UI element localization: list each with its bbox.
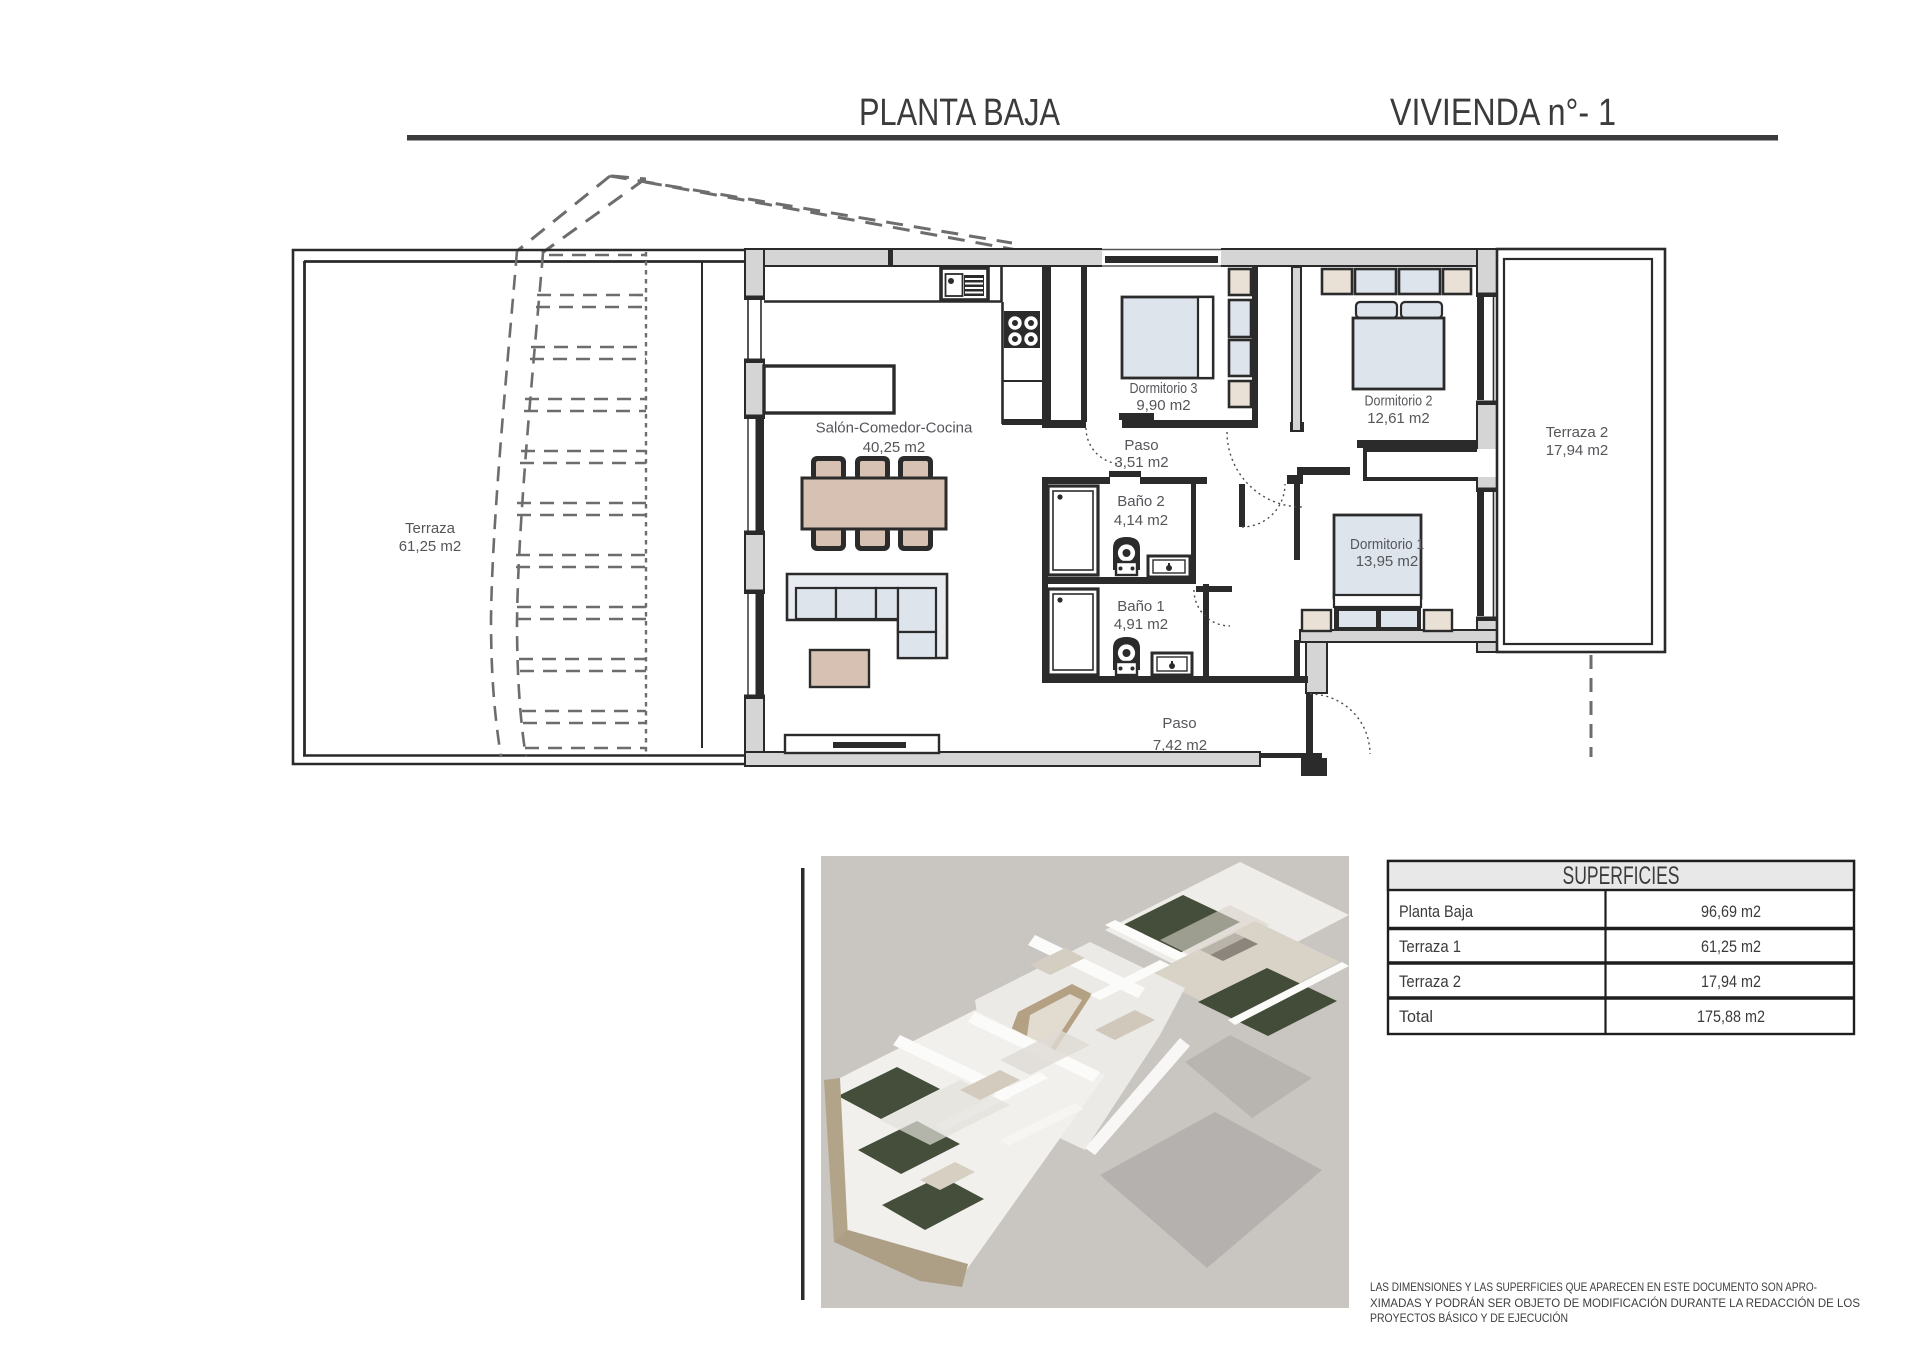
svg-text:4,91 m2: 4,91 m2 <box>1114 616 1168 633</box>
svg-text:96,69 m2: 96,69 m2 <box>1701 903 1761 921</box>
svg-text:175,88 m2: 175,88 m2 <box>1697 1008 1765 1026</box>
svg-text:Salón-Comedor-Cocina: Salón-Comedor-Cocina <box>816 420 973 437</box>
svg-text:61,25 m2: 61,25 m2 <box>1701 938 1761 956</box>
svg-text:Terraza 1: Terraza 1 <box>1399 938 1461 956</box>
svg-text:Terraza 2: Terraza 2 <box>1546 424 1609 441</box>
svg-text:Dormitorio 2: Dormitorio 2 <box>1365 393 1433 410</box>
svg-text:Total: Total <box>1399 1008 1433 1026</box>
svg-text:Planta Baja: Planta Baja <box>1399 903 1474 921</box>
svg-text:Baño 2: Baño 2 <box>1117 493 1165 510</box>
svg-text:9,90 m2: 9,90 m2 <box>1136 397 1190 414</box>
svg-text:61,25 m2: 61,25 m2 <box>399 538 462 555</box>
svg-text:Terraza 2: Terraza 2 <box>1399 973 1461 991</box>
svg-text:Dormitorio 1: Dormitorio 1 <box>1350 536 1424 553</box>
svg-text:17,94 m2: 17,94 m2 <box>1701 973 1761 991</box>
svg-text:3,51 m2: 3,51 m2 <box>1114 454 1168 471</box>
svg-text:Terraza: Terraza <box>405 520 456 537</box>
svg-text:PROYECTOS BÁSICO Y DE EJECUCIÓ: PROYECTOS BÁSICO Y DE EJECUCIÓN <box>1370 1310 1568 1325</box>
svg-text:PLANTA BAJA: PLANTA BAJA <box>859 92 1061 134</box>
svg-text:12,61 m2: 12,61 m2 <box>1367 410 1430 427</box>
svg-text:17,94 m2: 17,94 m2 <box>1546 442 1609 459</box>
svg-text:SUPERFICIES: SUPERFICIES <box>1563 862 1680 890</box>
svg-text:VIVIENDA n°- 1: VIVIENDA n°- 1 <box>1390 92 1616 134</box>
svg-text:40,25 m2: 40,25 m2 <box>863 439 926 456</box>
svg-text:Paso: Paso <box>1124 437 1158 454</box>
svg-text:Paso: Paso <box>1162 715 1196 732</box>
svg-text:7,42 m2: 7,42 m2 <box>1153 737 1207 754</box>
svg-text:13,95 m2: 13,95 m2 <box>1356 553 1419 570</box>
svg-text:Dormitorio 3: Dormitorio 3 <box>1130 380 1198 397</box>
svg-text:XIMADAS Y PODRÁN SER OBJETO DE: XIMADAS Y PODRÁN SER OBJETO DE MODIFICAC… <box>1370 1295 1860 1310</box>
svg-text:4,14 m2: 4,14 m2 <box>1114 512 1168 529</box>
svg-text:LAS DIMENSIONES Y LAS SUPERFIC: LAS DIMENSIONES Y LAS SUPERFICIES QUE AP… <box>1370 1280 1817 1294</box>
svg-text:Baño 1: Baño 1 <box>1117 598 1165 615</box>
